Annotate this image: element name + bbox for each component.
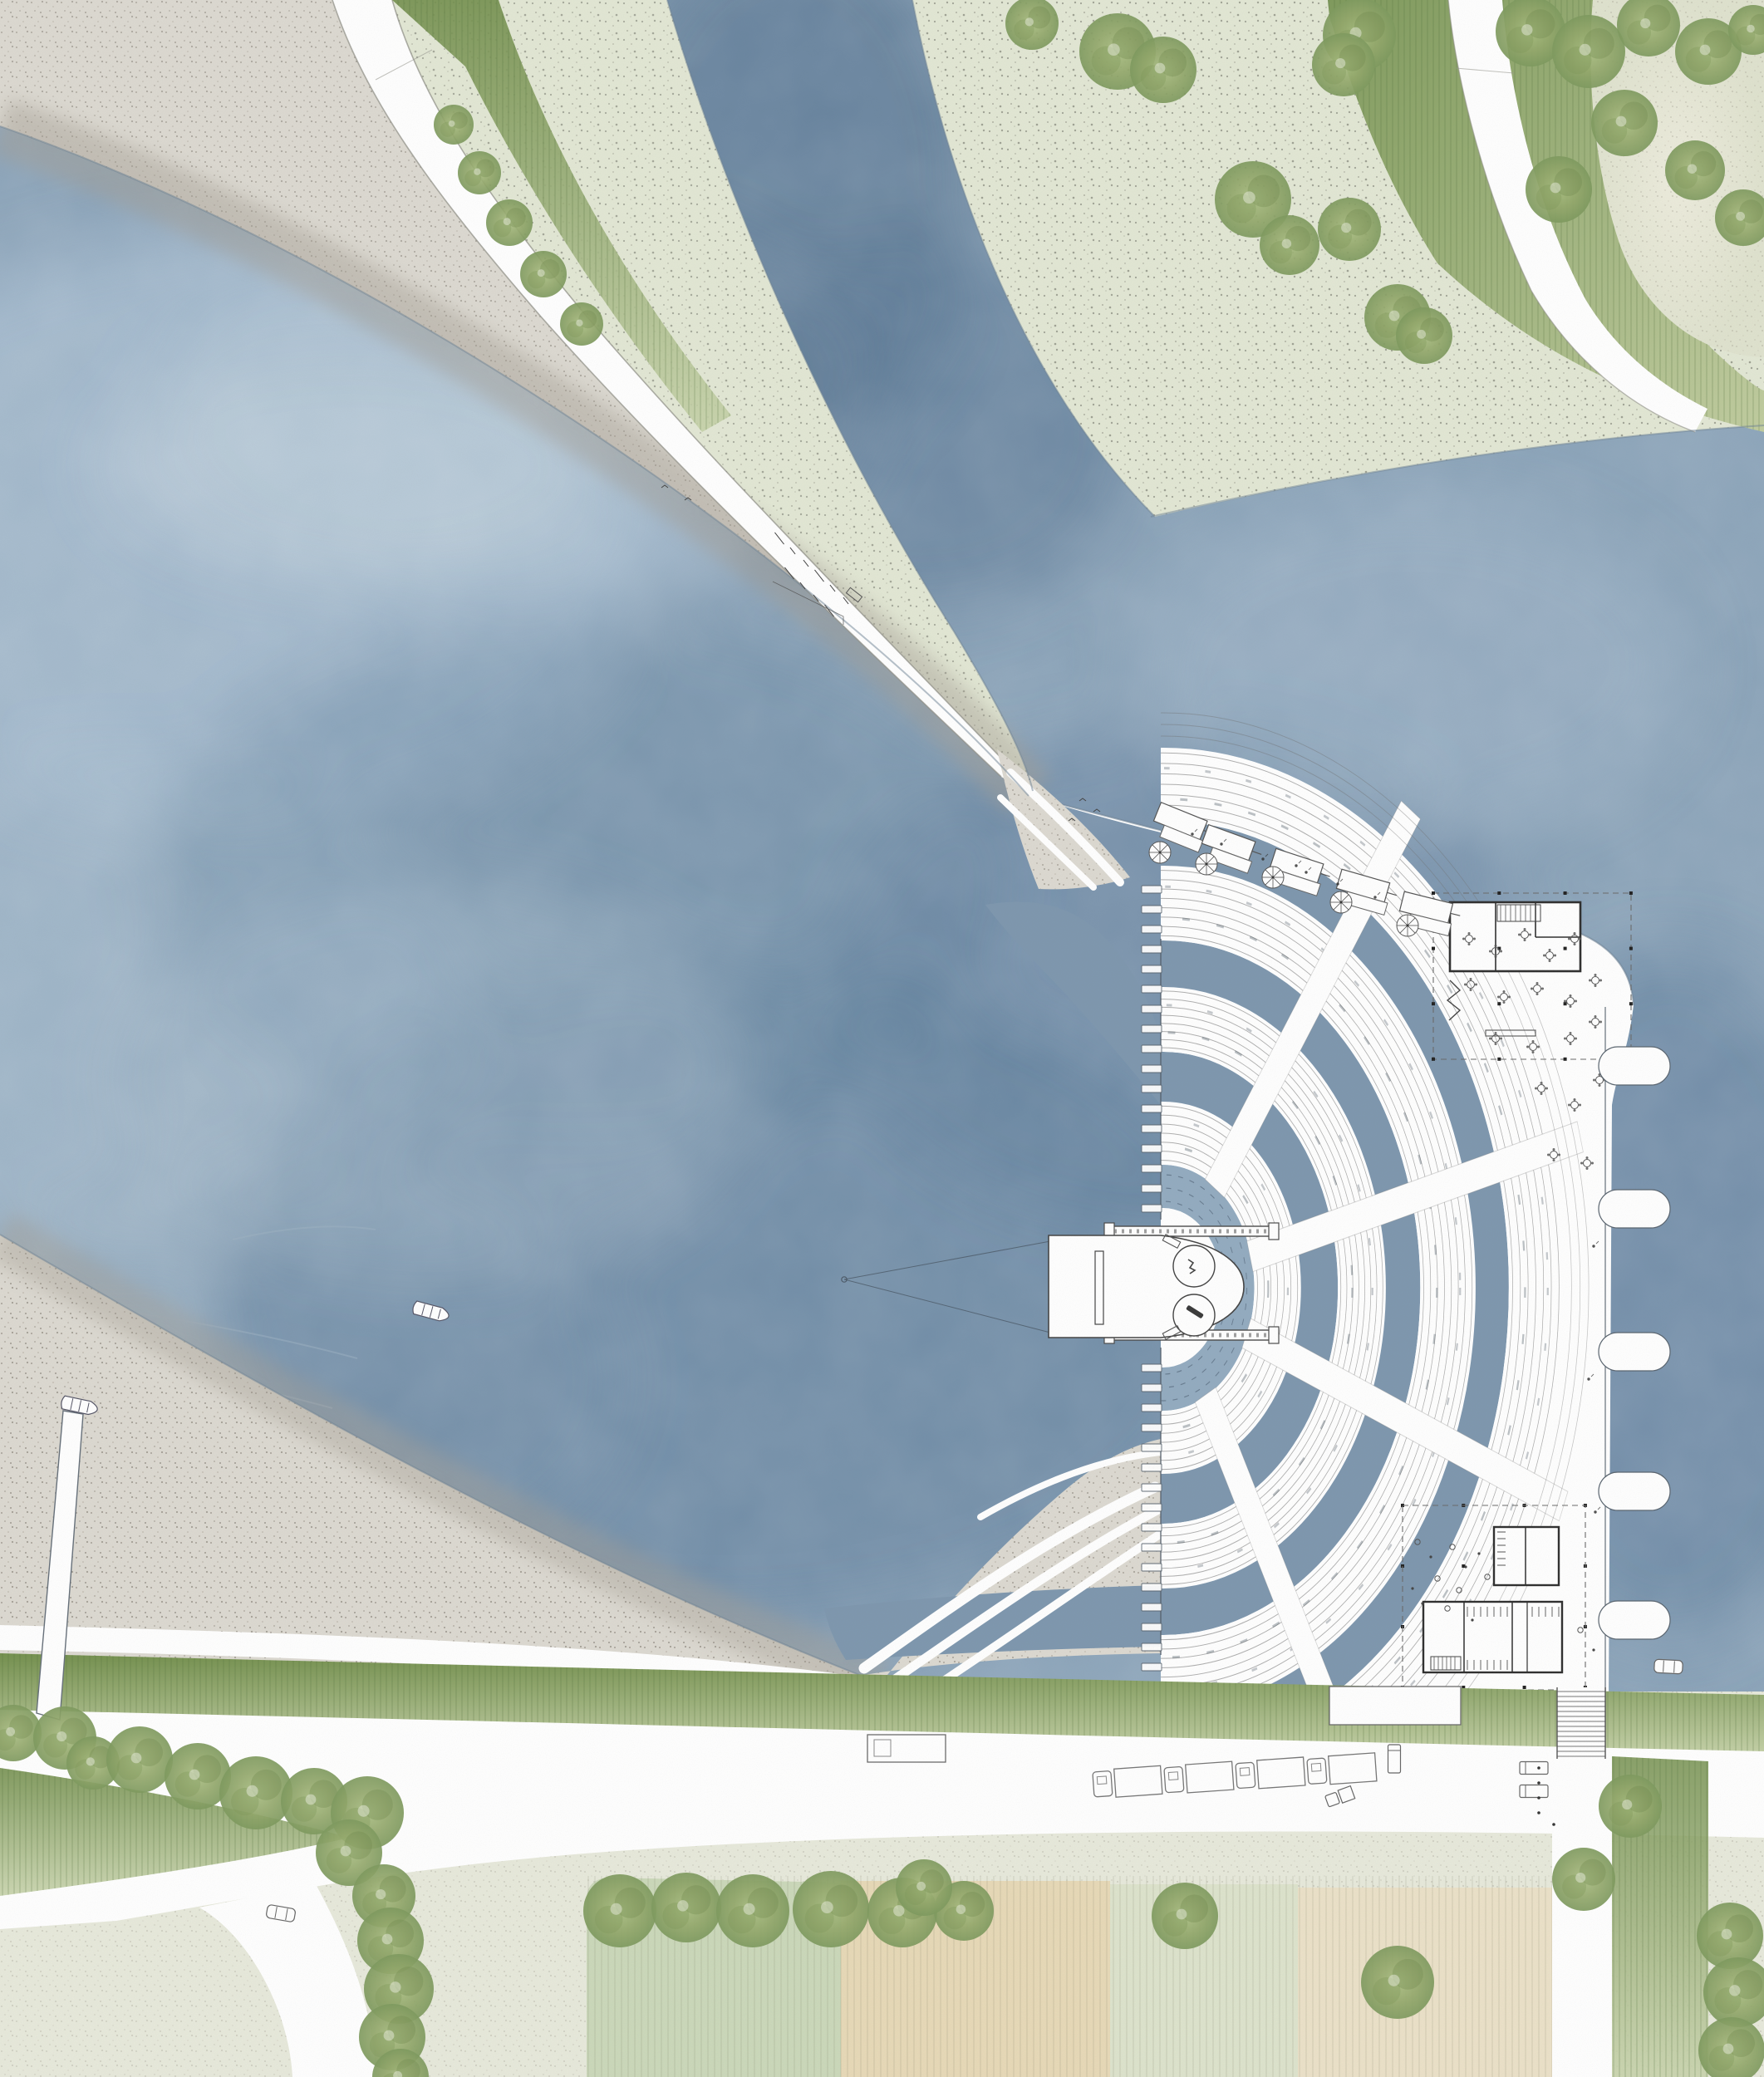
site-plan-drawing xyxy=(0,0,1764,2077)
site-plan-canvas xyxy=(0,0,1764,2077)
paper-grain-overlay xyxy=(0,0,1764,2077)
